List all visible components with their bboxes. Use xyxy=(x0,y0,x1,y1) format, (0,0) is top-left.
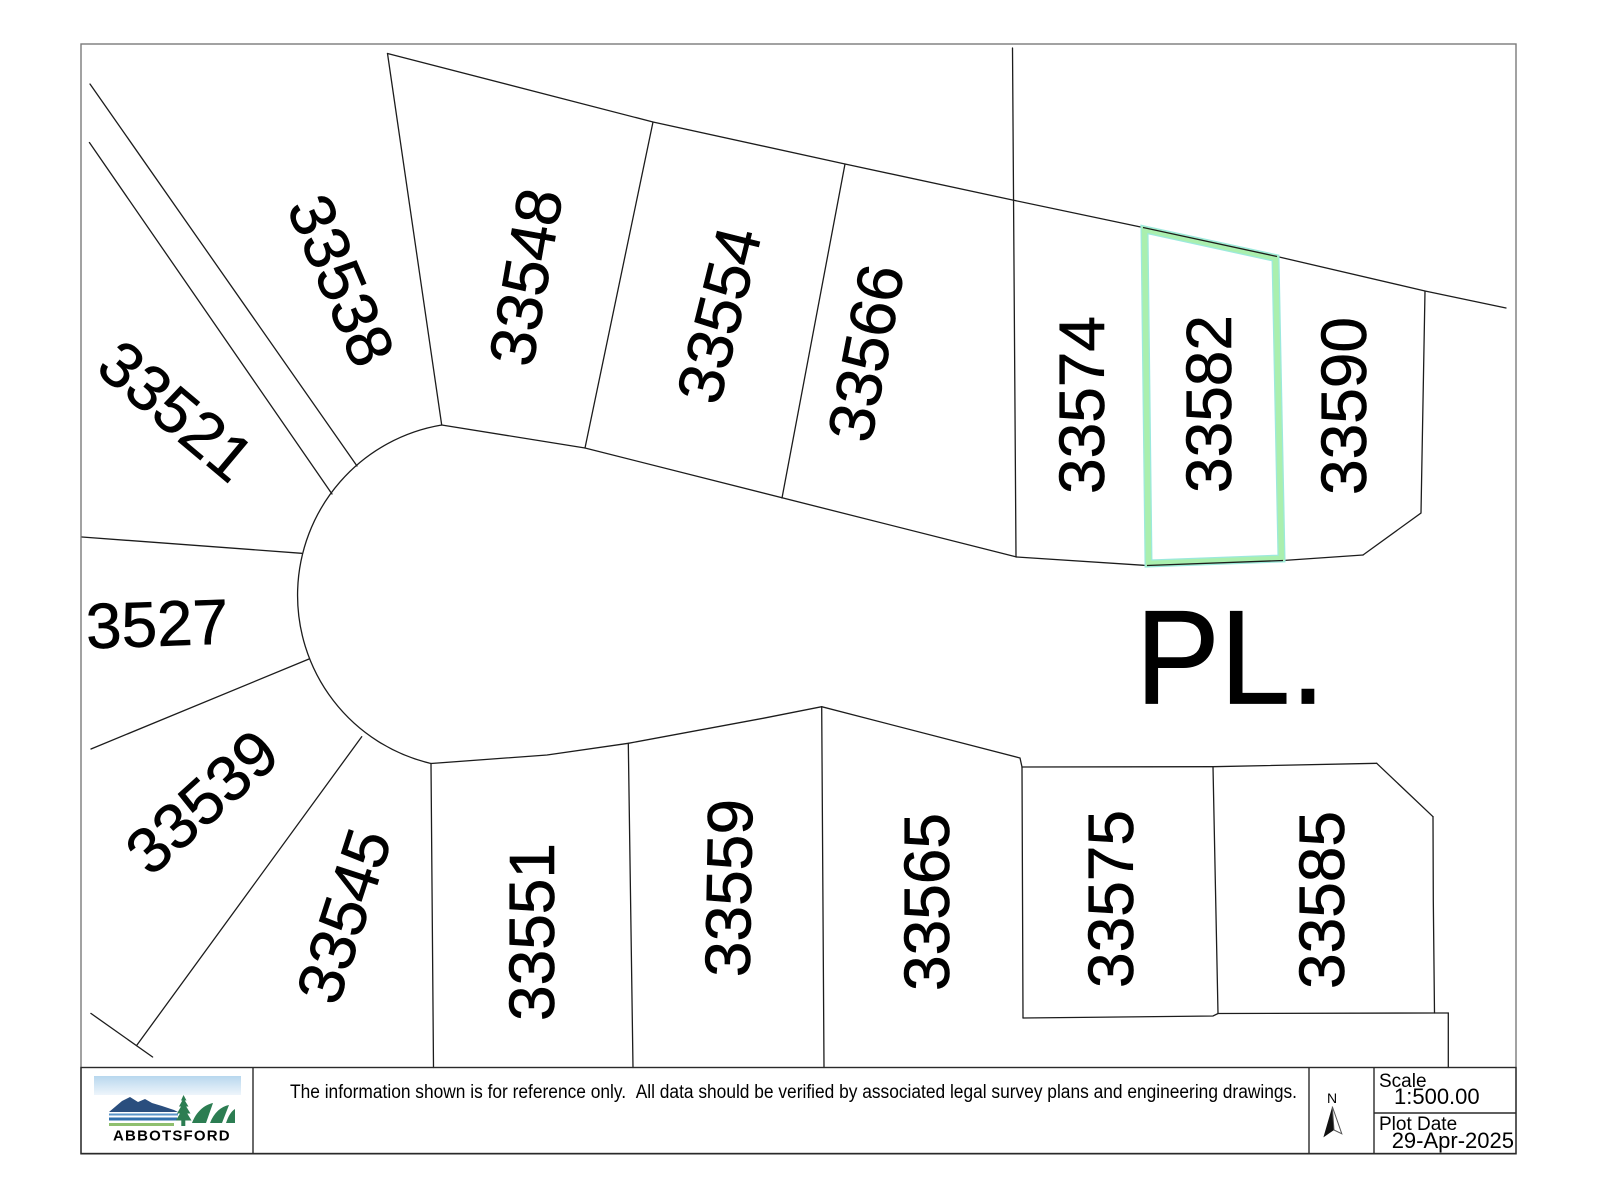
svg-text:33582: 33582 xyxy=(1173,315,1245,493)
svg-text:33590: 33590 xyxy=(1308,317,1380,495)
svg-text:29-Apr-2025: 29-Apr-2025 xyxy=(1392,1128,1514,1153)
svg-text:33554: 33554 xyxy=(663,220,776,410)
svg-text:33559: 33559 xyxy=(691,798,766,977)
svg-text:33538: 33538 xyxy=(273,185,409,377)
svg-text:33565: 33565 xyxy=(891,813,963,991)
svg-text:ABBOTSFORD: ABBOTSFORD xyxy=(113,1128,231,1145)
svg-text:33551: 33551 xyxy=(496,843,568,1021)
svg-text:1:500.00: 1:500.00 xyxy=(1394,1084,1480,1109)
svg-text:N: N xyxy=(1327,1090,1337,1106)
svg-text:33521: 33521 xyxy=(85,326,268,496)
svg-text:33548: 33548 xyxy=(475,183,577,371)
svg-text:33539: 33539 xyxy=(112,716,292,889)
svg-text:PL.: PL. xyxy=(1136,584,1326,733)
svg-text:33545: 33545 xyxy=(282,820,405,1012)
svg-text:33566: 33566 xyxy=(814,259,919,447)
svg-text:3527: 3527 xyxy=(85,586,230,663)
svg-text:The information shown is for r: The information shown is for reference o… xyxy=(290,1082,1297,1103)
svg-text:33575: 33575 xyxy=(1075,810,1147,988)
svg-text:33574: 33574 xyxy=(1046,316,1118,494)
svg-text:33585: 33585 xyxy=(1286,811,1358,989)
